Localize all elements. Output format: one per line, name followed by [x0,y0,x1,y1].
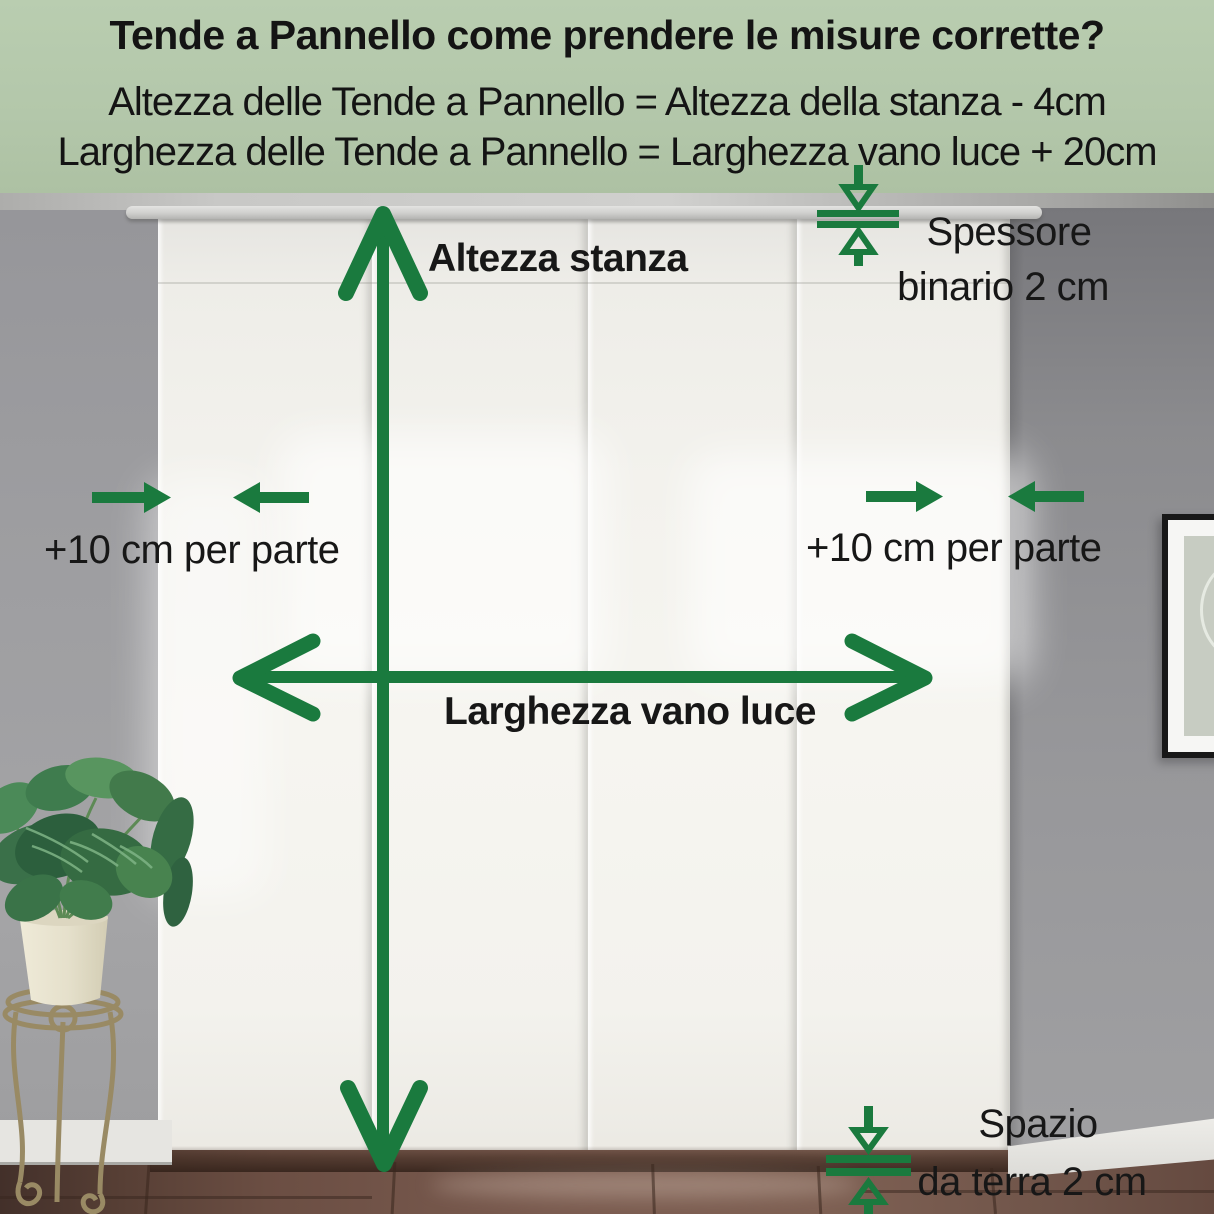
curtain-floor-shadow [150,1146,1018,1172]
width-formula: Larghezza delle Tende a Pannello = Largh… [0,130,1214,175]
rail-thickness-label-line1: Spessore [927,210,1092,255]
room-height-label: Altezza stanza [428,237,688,281]
framed-artwork [1184,536,1214,736]
side-allowance-left-label: +10 cm per parte [44,528,340,573]
curtain-panel-2 [372,218,588,1160]
height-formula: Altezza delle Tende a Pannello = Altezza… [0,80,1214,125]
wall-corner-shadow [1008,208,1024,1214]
wall-picture-frame [1162,514,1214,758]
tile-grout [0,1196,372,1199]
page-title: Tende a Pannello come prendere le misure… [0,12,1214,59]
floor-sheen [430,1172,860,1198]
curtain-panel-3 [588,218,797,1160]
rail-thickness-label-line2: binario 2 cm [897,265,1109,310]
floor-gap-label-line1: Spazio [978,1102,1097,1147]
floor-gap-label-line2: da terra 2 cm [917,1160,1146,1205]
side-allowance-right-label: +10 cm per parte [806,526,1102,571]
header-band: Tende a Pannello come prendere le misure… [0,0,1214,193]
left-wall [0,210,160,1214]
curtain-rail [126,206,1042,219]
opening-width-label: Larghezza vano luce [444,690,816,734]
panel-curtain-measuring-infographic: Tende a Pannello come prendere le misure… [0,0,1214,1214]
left-baseboard [0,1120,172,1165]
curtain-panel-4 [797,218,1010,1160]
panel-curtains [158,218,1010,1160]
artwork-circle-motif [1200,560,1214,660]
